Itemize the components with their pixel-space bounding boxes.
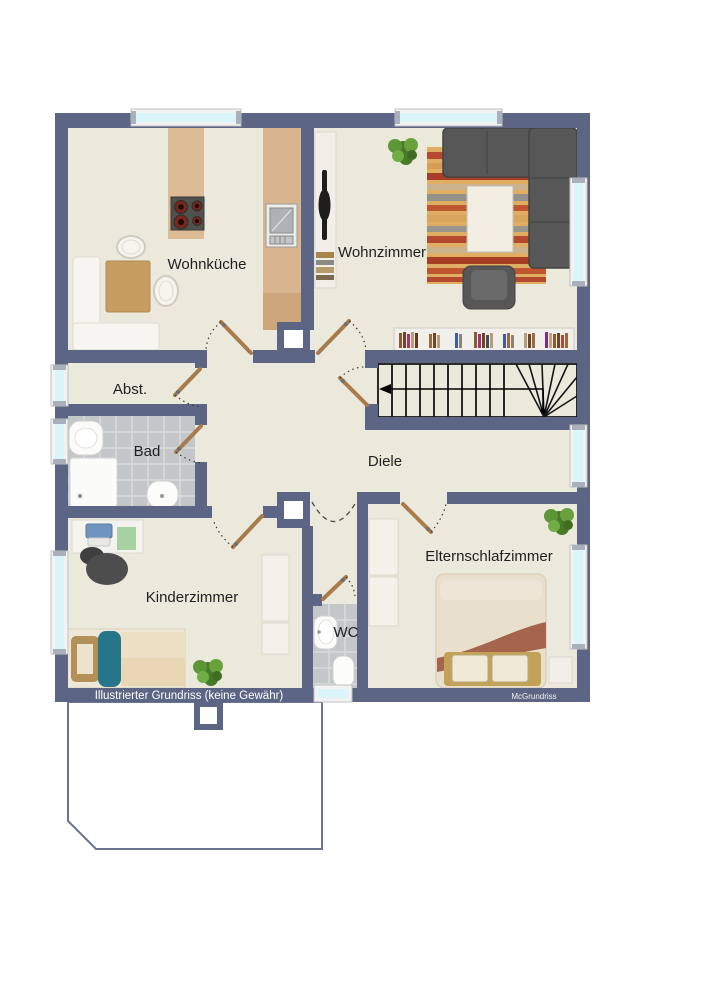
chimney — [284, 501, 303, 519]
window-icon — [570, 425, 587, 487]
room-label-diele: Diele — [368, 453, 402, 470]
room-label-bad: Bad — [134, 443, 161, 460]
window-icon — [395, 109, 502, 126]
room-label-wc: WC — [334, 624, 359, 641]
sink-icon — [266, 204, 297, 247]
single-bed-icon — [67, 629, 185, 688]
window-icon — [51, 551, 68, 654]
toilet-icon — [333, 656, 354, 687]
window-icon — [314, 685, 352, 702]
staircase — [378, 364, 577, 417]
wardrobe-icon — [369, 519, 398, 626]
chair-icon — [154, 276, 178, 306]
window-icon — [51, 419, 68, 464]
chair-icon — [117, 236, 145, 258]
washbasin-icon — [69, 421, 103, 455]
window-icon — [51, 365, 68, 406]
shower-icon — [70, 458, 117, 507]
room-label-wohnzimmer: Wohnzimmer — [338, 244, 426, 261]
stove-icon — [171, 197, 204, 230]
room-label-kinderzimmer: Kinderzimmer — [146, 589, 239, 606]
window-icon — [570, 178, 587, 286]
armchair-icon — [463, 266, 515, 309]
nightstand-icon — [549, 657, 572, 683]
coffee-table-icon — [467, 186, 513, 252]
credit-text: McGrundriss — [511, 692, 556, 701]
wardrobe-icon — [262, 555, 289, 654]
chimney — [284, 330, 303, 348]
tv-sideboard-icon — [315, 132, 336, 288]
window-icon — [131, 109, 241, 126]
laptop-icon — [86, 524, 112, 546]
room-label-abstellraum: Abst. — [113, 381, 147, 398]
window-icon — [570, 545, 587, 649]
toilet-icon — [147, 481, 178, 508]
floorplan-svg: Wohnküche Wohnzimmer Abst. Bad Diele Kin… — [0, 0, 706, 1000]
disclaimer-caption: Illustrierter Grundriss (keine Gewähr) — [95, 690, 284, 702]
pillar-core — [200, 707, 217, 724]
floorplan: Wohnküche Wohnzimmer Abst. Bad Diele Kin… — [0, 0, 706, 1000]
room-label-wohnkueche: Wohnküche — [168, 256, 247, 273]
room-label-elternschlafzimmer: Elternschlafzimmer — [425, 548, 553, 565]
desk-icon — [72, 520, 143, 553]
desk-pad — [117, 527, 136, 550]
bookshelf-icon — [394, 328, 574, 351]
dining-table-icon — [106, 261, 150, 312]
double-bed-icon — [436, 574, 546, 688]
